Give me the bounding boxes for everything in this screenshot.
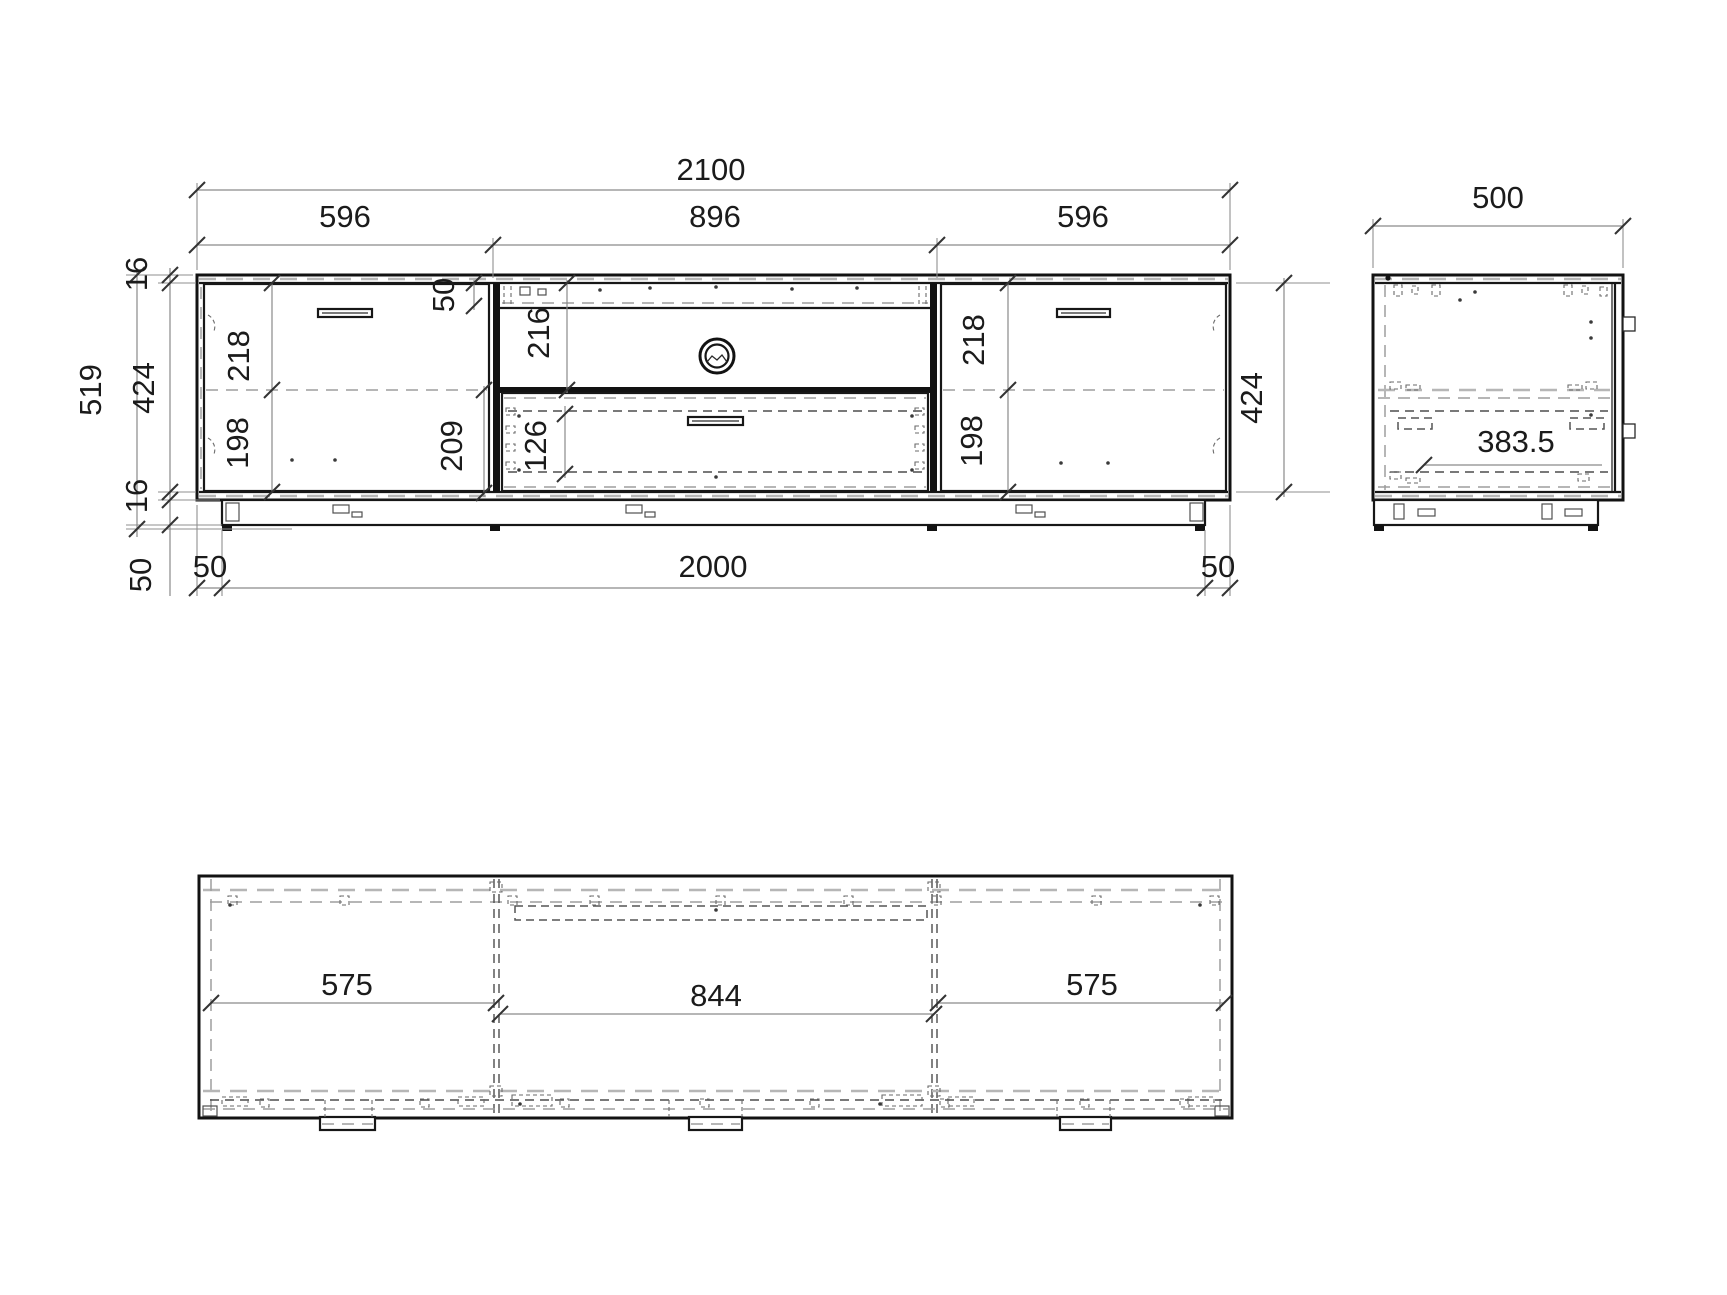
cable-grommet-icon — [700, 339, 734, 373]
front-view — [197, 275, 1230, 531]
dim-top-rail: 50 — [426, 278, 461, 312]
dim-panel-bottom: 16 — [119, 479, 154, 513]
dim-section-middle: 896 — [689, 199, 741, 234]
drawing-sheet: 2100 596 896 596 519 16 424 16 50 218 19… — [0, 0, 1727, 1295]
front-partition-left — [493, 283, 500, 492]
dim-plan-inner-left: 575 — [321, 967, 373, 1002]
dim-plan-inner-right: 575 — [1066, 967, 1118, 1002]
dim-panel-top: 16 — [119, 257, 154, 291]
side-view — [1373, 275, 1635, 531]
plinth-front — [222, 500, 1205, 525]
dim-plan-inner-middle: 844 — [690, 978, 742, 1013]
dim-door-left-upper: 218 — [221, 330, 256, 382]
plinth — [222, 500, 1205, 531]
side-corner-dowel — [1385, 275, 1390, 280]
front-partition-right — [930, 283, 937, 492]
dim-inner-height: 424 — [126, 362, 161, 414]
side-front-fitting-top — [1623, 317, 1635, 331]
dim-total-height: 519 — [73, 364, 108, 416]
dim-door-left-lower: 198 — [220, 417, 255, 469]
foot-2 — [490, 525, 500, 531]
dim-drawer-zone: 209 — [434, 420, 469, 472]
dim-plinth-offset-right: 50 — [1201, 549, 1235, 584]
foot-4 — [1195, 525, 1205, 531]
dim-carcass-height: 424 — [1234, 372, 1269, 424]
dim-interior-depth: 383.5 — [1477, 424, 1555, 459]
side-front-fitting-bottom — [1623, 424, 1635, 438]
dim-door-right-upper: 218 — [956, 314, 991, 366]
dim-section-right: 596 — [1057, 199, 1109, 234]
dim-drawer-box: 126 — [518, 420, 553, 472]
dim-plinth-length: 2000 — [679, 549, 748, 584]
dim-total-width: 2100 — [677, 152, 746, 187]
dim-door-right-lower: 198 — [954, 415, 989, 467]
technical-drawing-canvas: 2100 596 896 596 519 16 424 16 50 218 19… — [0, 0, 1727, 1295]
side-foot-front — [1588, 525, 1598, 531]
dim-plinth-height: 50 — [123, 558, 158, 592]
foot-1 — [222, 525, 232, 531]
foot-3 — [927, 525, 937, 531]
dim-depth: 500 — [1472, 180, 1524, 215]
dim-open-compartment: 216 — [521, 307, 556, 359]
dim-section-left: 596 — [319, 199, 371, 234]
dim-plinth-offset-left: 50 — [193, 549, 227, 584]
side-foot-back — [1374, 525, 1384, 531]
